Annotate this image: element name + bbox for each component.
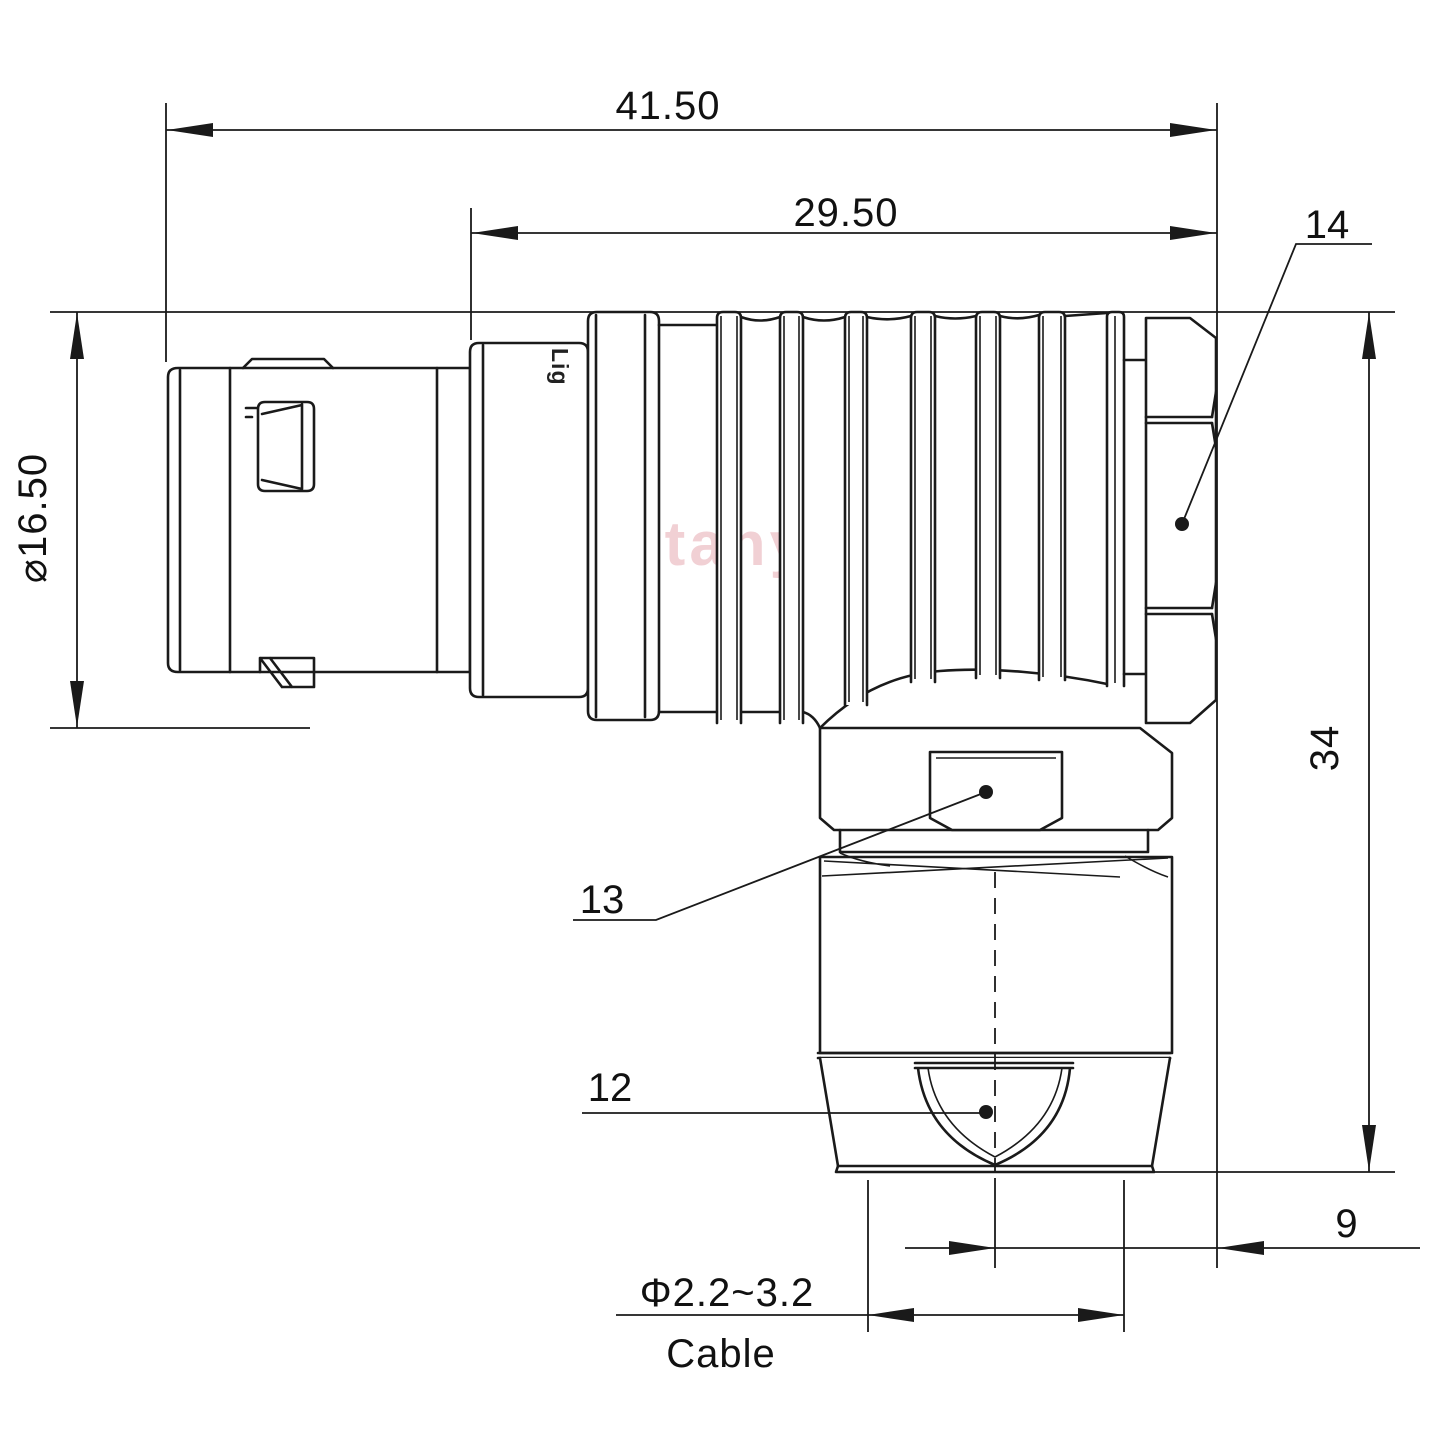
- bayonet-lug-bump: [243, 359, 333, 368]
- arrowhead: [167, 123, 213, 137]
- sleeve-engraving-text: Lig: [547, 348, 573, 386]
- dim-text-shell-diameter: ⌀16.50: [11, 453, 55, 583]
- release-collar: [588, 312, 659, 720]
- dim-text-cable-diameter: Φ2.2~3.2: [640, 1271, 814, 1315]
- dim-text-overall-length: 41.50: [615, 84, 720, 128]
- neck-lines: [1124, 360, 1146, 674]
- arrowhead: [1218, 1241, 1264, 1255]
- cable-nut-cylinder: [820, 857, 1172, 1053]
- leader-dot-13: [979, 785, 993, 799]
- part-label-cable-clamp-nut: 12: [588, 1066, 633, 1110]
- arrowhead: [868, 1308, 914, 1322]
- arrowhead: [1078, 1308, 1124, 1322]
- part-label-coupling-nut: 14: [1305, 203, 1350, 247]
- arrowhead: [472, 226, 518, 240]
- body-hex-flat: [930, 752, 1062, 830]
- arrowhead: [949, 1241, 995, 1255]
- bayonet-slot: [258, 402, 314, 491]
- thread-band: [840, 830, 1148, 852]
- dim-text-front-length: 29.50: [793, 191, 898, 235]
- dimensions: 41.50 29.50 ⌀16.50 34 9 Φ2.2~3.2 Cable: [11, 84, 1420, 1376]
- leader-dot-14: [1175, 517, 1189, 531]
- arrowhead: [1170, 226, 1216, 240]
- arrowhead: [1362, 1125, 1376, 1171]
- technical-drawing-canvas: Lightany Lig: [0, 0, 1440, 1440]
- leader-dot-12: [979, 1105, 993, 1119]
- front-shell: [168, 368, 470, 672]
- arrowhead: [70, 313, 84, 359]
- connector-drawing-svg: Lightany Lig: [0, 0, 1440, 1440]
- dim-text-overall-height: 34: [1303, 725, 1347, 772]
- frustum-top-lines: [818, 1053, 1170, 1058]
- elbow-lower-body: [818, 728, 1172, 1172]
- arrowhead: [70, 681, 84, 727]
- part-label-body-hex: 13: [580, 878, 625, 922]
- arrowhead: [1362, 313, 1376, 359]
- dim-text-elbow-offset: 9: [1335, 1202, 1358, 1246]
- arrowhead: [1170, 123, 1216, 137]
- insulator-sleeve: [470, 343, 588, 697]
- dim-text-cable-label: Cable: [666, 1332, 776, 1376]
